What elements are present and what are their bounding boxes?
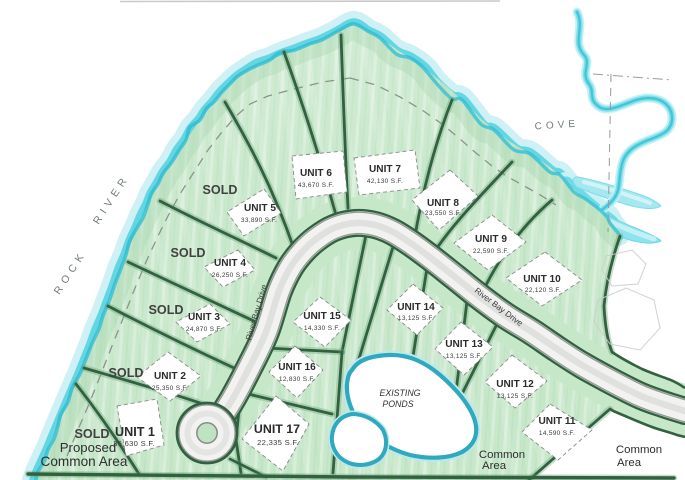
svg-text:12,830 S.F.: 12,830 S.F.	[279, 376, 315, 383]
svg-text:Proposed: Proposed	[60, 440, 116, 455]
svg-text:UNIT 11: UNIT 11	[538, 416, 575, 427]
svg-text:PONDS: PONDS	[382, 399, 413, 409]
svg-text:UNIT 13: UNIT 13	[445, 339, 483, 350]
svg-text:22,590 S.F.: 22,590 S.F.	[473, 248, 509, 255]
svg-text:UNIT 4: UNIT 4	[214, 258, 246, 269]
svg-text:UNIT 5: UNIT 5	[244, 203, 276, 214]
svg-text:UNIT 17: UNIT 17	[254, 422, 300, 436]
svg-text:UNIT 12: UNIT 12	[496, 379, 534, 390]
svg-text:UNIT 6: UNIT 6	[300, 168, 332, 179]
svg-text:UNIT 14: UNIT 14	[397, 302, 435, 313]
svg-text:Common Area: Common Area	[41, 454, 128, 469]
svg-text:13,125 S.F.: 13,125 S.F.	[398, 315, 434, 322]
svg-text:Area: Area	[482, 460, 507, 472]
svg-text:UNIT 16: UNIT 16	[278, 362, 316, 373]
svg-text:Common: Common	[616, 444, 662, 456]
svg-text:33,890 S.F.: 33,890 S.F.	[241, 217, 277, 224]
svg-text:SOLD: SOLD	[149, 303, 184, 317]
svg-text:SOLD: SOLD	[75, 427, 110, 441]
svg-text:13,125 S.F.: 13,125 S.F.	[446, 353, 482, 360]
svg-text:25,350 S.F.: 25,350 S.F.	[152, 385, 188, 392]
svg-text:26,250 S.F.: 26,250 S.F.	[212, 272, 248, 279]
svg-text:UNIT 7: UNIT 7	[369, 164, 401, 175]
svg-text:23,550 S.F.: 23,550 S.F.	[425, 210, 461, 217]
svg-text:UNIT 15: UNIT 15	[303, 311, 341, 322]
svg-text:Area: Area	[617, 457, 642, 469]
svg-text:24,870 S.F.: 24,870 S.F.	[186, 326, 222, 333]
svg-text:22,120 S.F.: 22,120 S.F.	[525, 287, 561, 294]
svg-text:UNIT 9: UNIT 9	[475, 234, 507, 245]
svg-text:14,590 S.F.: 14,590 S.F.	[539, 430, 575, 437]
svg-text:42,130 S.F.: 42,130 S.F.	[367, 178, 403, 185]
svg-text:36,630 S.F.: 36,630 S.F.	[113, 439, 155, 448]
svg-text:UNIT 3: UNIT 3	[188, 312, 220, 323]
svg-text:UNIT 1: UNIT 1	[115, 425, 155, 439]
svg-text:UNIT 8: UNIT 8	[427, 198, 459, 209]
svg-text:EXISTING: EXISTING	[379, 388, 420, 398]
svg-text:43,670 S.F.: 43,670 S.F.	[298, 182, 334, 189]
svg-text:13,125 S.F.: 13,125 S.F.	[497, 393, 533, 400]
svg-text:UNIT 10: UNIT 10	[523, 274, 561, 285]
svg-text:14,330 S.F.: 14,330 S.F.	[304, 325, 340, 332]
svg-text:SOLD: SOLD	[171, 246, 206, 260]
svg-text:UNIT 2: UNIT 2	[154, 371, 186, 382]
svg-text:22,335 S.F.: 22,335 S.F.	[257, 438, 299, 447]
svg-text:SOLD: SOLD	[109, 366, 144, 380]
svg-text:SOLD: SOLD	[203, 183, 238, 197]
